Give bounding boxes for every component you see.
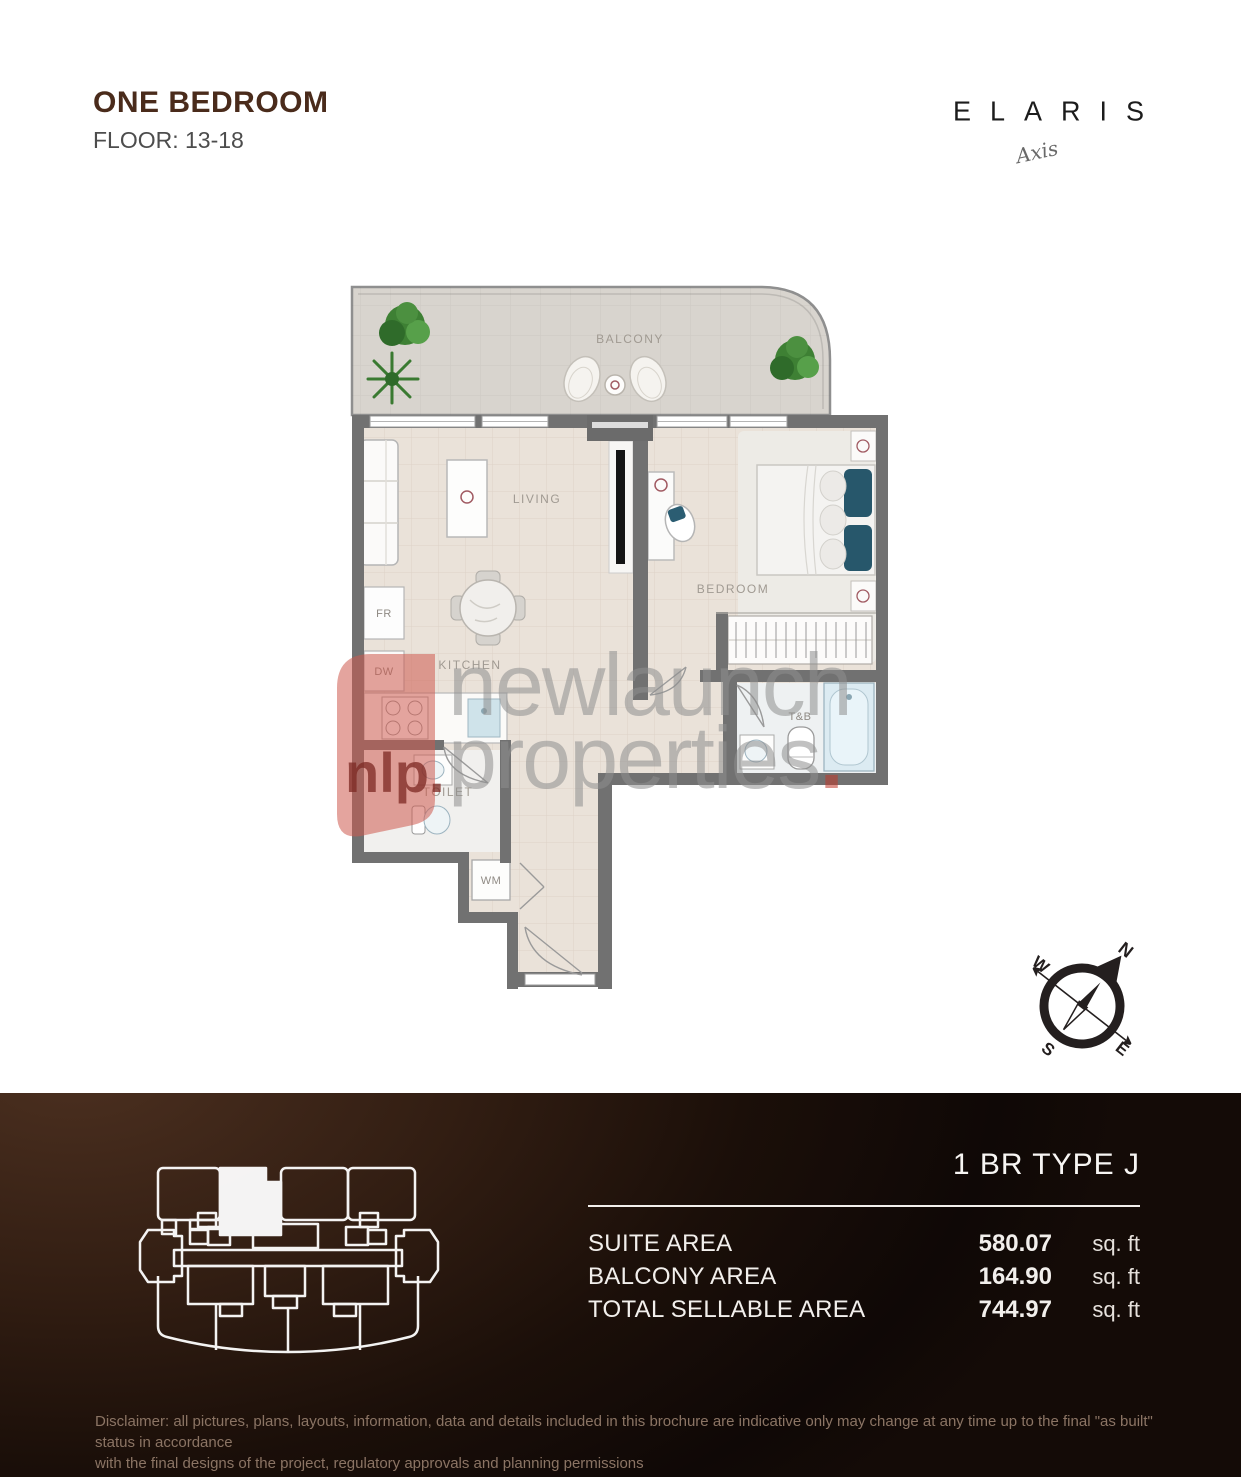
watermark-logo-text: nlp. <box>345 741 445 804</box>
brochure-page: ONE BEDROOM FLOOR: 13-18 ELARIS Axis BAL… <box>0 0 1241 1477</box>
table-row: TOTAL SELLABLE AREA 744.97 sq. ft <box>588 1293 1140 1326</box>
watermark-logo: nlp. <box>323 642 453 842</box>
area-row-value: 164.90 <box>932 1263 1052 1291</box>
area-row-value: 580.07 <box>932 1230 1052 1258</box>
balcony-table <box>605 375 625 395</box>
area-table: SUITE AREA 580.07 sq. ft BALCONY AREA 16… <box>588 1227 1140 1326</box>
table-row: BALCONY AREA 164.90 sq. ft <box>588 1260 1140 1293</box>
area-row-unit: sq. ft <box>1052 1264 1140 1290</box>
bedroom-label: BEDROOM <box>697 582 770 596</box>
area-row-label: SUITE AREA <box>588 1230 932 1258</box>
floor-range: FLOOR: 13-18 <box>93 127 244 154</box>
watermark-dot: . <box>819 708 841 807</box>
nightstand-bottom <box>851 581 876 611</box>
area-row-unit: sq. ft <box>1052 1297 1140 1323</box>
disclaimer-line2: with the final designs of the project, r… <box>95 1453 1165 1474</box>
balcony-label: BALCONY <box>596 332 664 346</box>
area-row-label: TOTAL SELLABLE AREA <box>588 1296 932 1324</box>
wm-label: WM <box>481 875 502 887</box>
compass: N E S W <box>1010 930 1160 1082</box>
area-row-label: BALCONY AREA <box>588 1263 932 1291</box>
watermark-text: newlaunch properties. <box>448 648 851 794</box>
fr-label: FR <box>376 608 392 620</box>
key-plan <box>138 1158 440 1360</box>
partition-tv <box>609 441 633 573</box>
tv-console <box>447 460 487 537</box>
brand-signature: Axis <box>1000 133 1073 171</box>
compass-w: W <box>1028 952 1053 977</box>
disclaimer: Disclaimer: all pictures, plans, layouts… <box>95 1411 1165 1474</box>
area-row-unit: sq. ft <box>1052 1231 1140 1257</box>
compass-s: S <box>1038 1038 1059 1060</box>
balcony-sliding-door <box>587 415 653 441</box>
watermark-line2: properties. <box>448 721 851 794</box>
bed <box>757 465 875 575</box>
plant-palm <box>368 353 418 403</box>
page-title: ONE BEDROOM <box>93 86 329 120</box>
area-row-value: 744.97 <box>932 1296 1052 1324</box>
nightstand-top <box>851 431 876 461</box>
table-row: SUITE AREA 580.07 sq. ft <box>588 1227 1140 1260</box>
brand-logo: ELARIS <box>953 95 1163 127</box>
divider-line <box>588 1205 1140 1207</box>
sofa <box>360 440 398 565</box>
unit-type-heading: 1 BR TYPE J <box>953 1148 1140 1182</box>
disclaimer-line1: Disclaimer: all pictures, plans, layouts… <box>95 1411 1165 1453</box>
entrance-door <box>525 974 595 985</box>
living-label: LIVING <box>513 492 561 506</box>
footer-band: 1 BR TYPE J SUITE AREA 580.07 sq. ft BAL… <box>0 1093 1241 1477</box>
balcony-area: BALCONY <box>352 287 830 415</box>
